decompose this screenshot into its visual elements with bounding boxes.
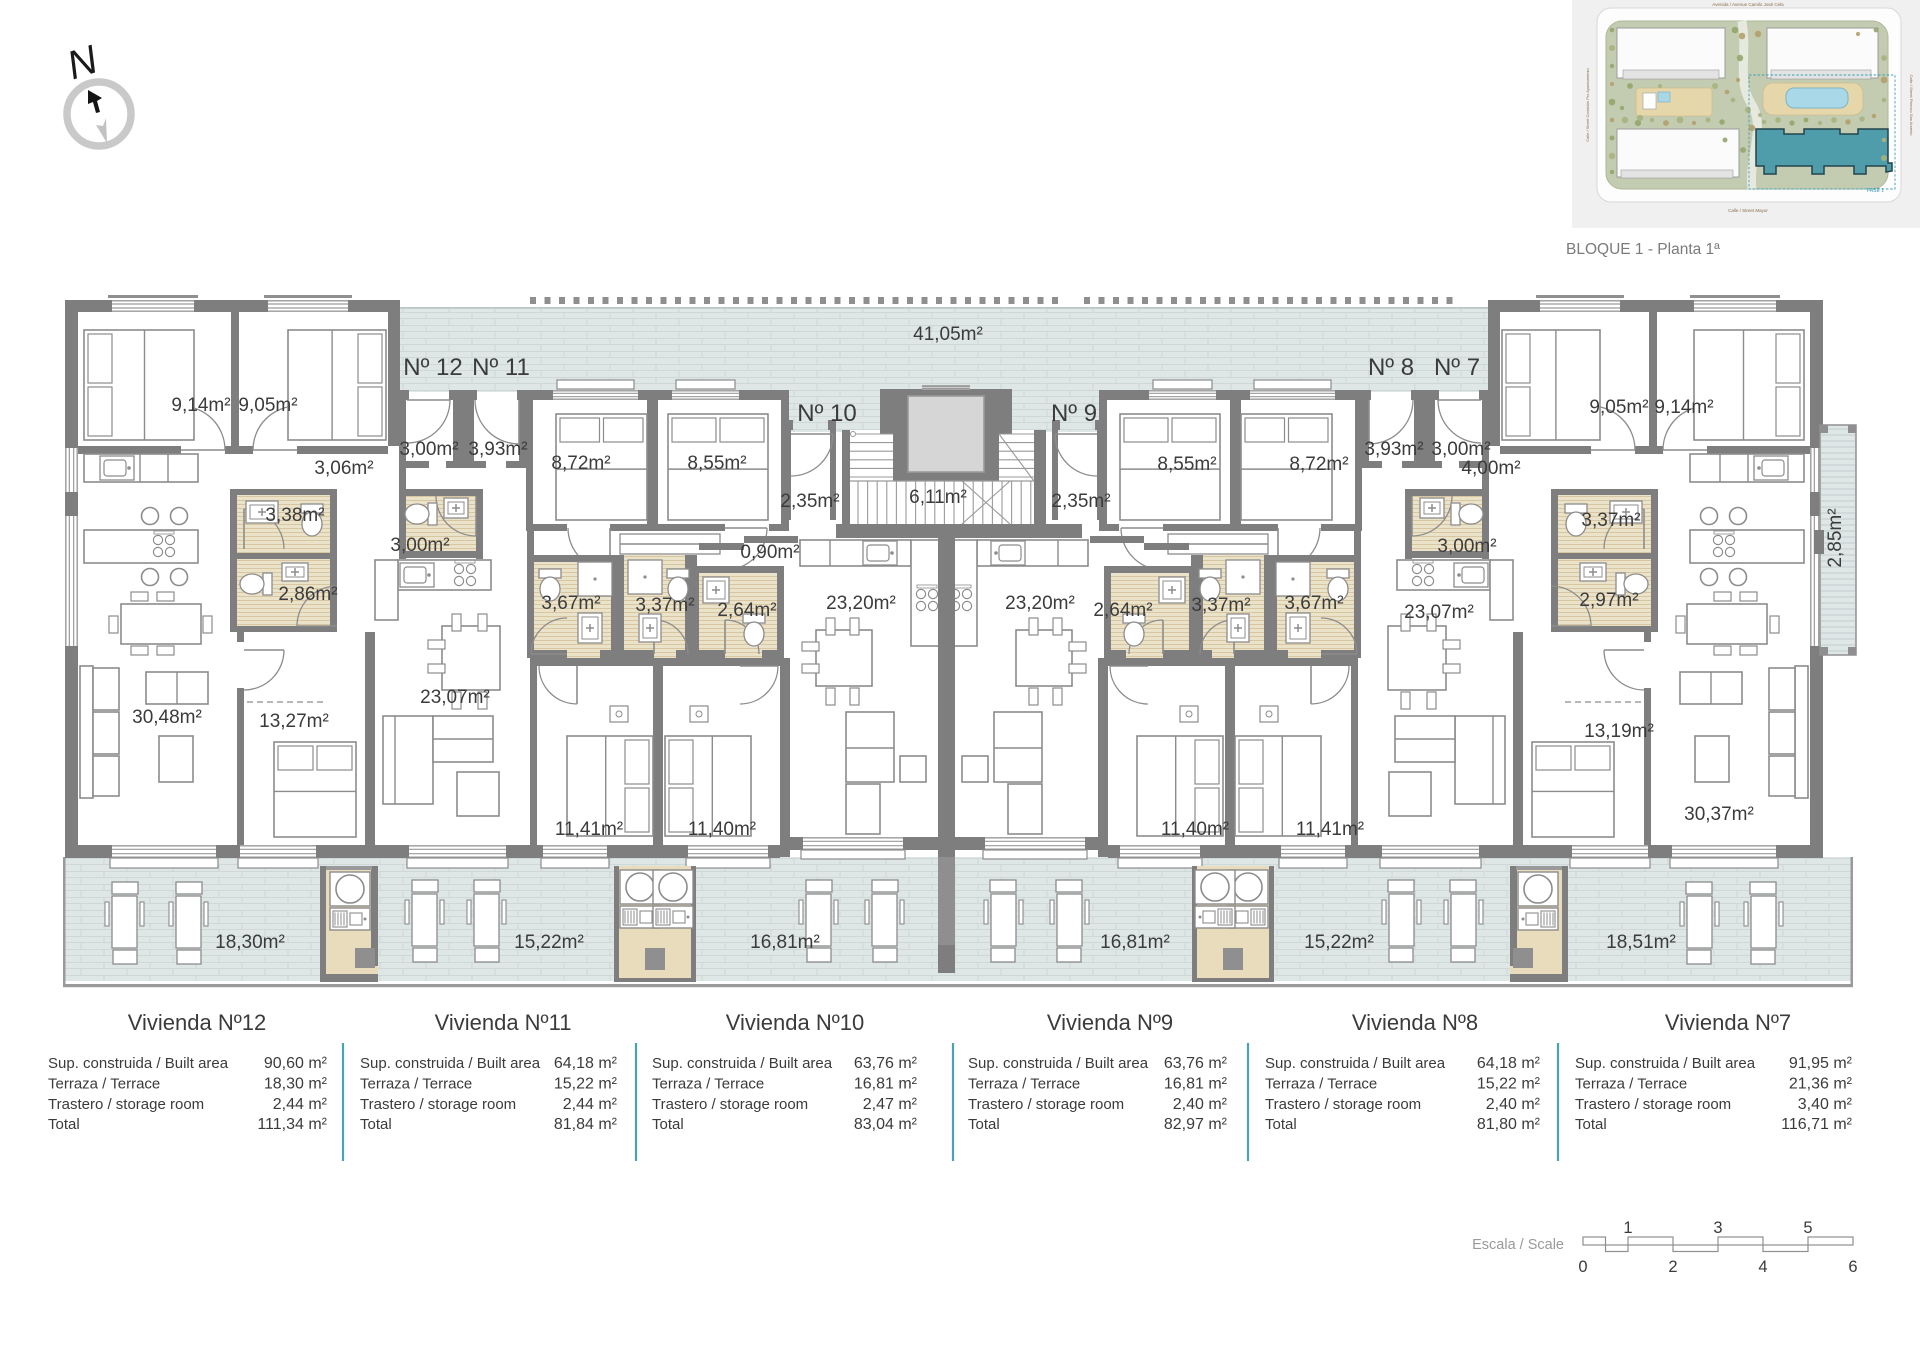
svg-text:64,18 m²: 64,18 m² bbox=[1477, 1055, 1541, 1072]
svg-text:Terraza / Terrace: Terraza / Terrace bbox=[652, 1075, 764, 1092]
svg-text:21,36 m²: 21,36 m² bbox=[1789, 1075, 1853, 1092]
svg-text:3,00m²: 3,00m² bbox=[1437, 536, 1496, 557]
svg-text:6: 6 bbox=[1848, 1258, 1857, 1276]
svg-text:3,38m²: 3,38m² bbox=[265, 505, 324, 526]
svg-text:Sup. construida / Built area: Sup. construida / Built area bbox=[1575, 1055, 1756, 1072]
svg-text:3,06m²: 3,06m² bbox=[314, 458, 373, 479]
svg-text:Total: Total bbox=[1575, 1116, 1607, 1133]
svg-text:0: 0 bbox=[1578, 1258, 1587, 1276]
svg-text:18,51m²: 18,51m² bbox=[1606, 932, 1676, 953]
svg-text:11,41m²: 11,41m² bbox=[555, 819, 623, 840]
svg-text:Total: Total bbox=[48, 1116, 80, 1133]
svg-text:3,67m²: 3,67m² bbox=[541, 593, 600, 614]
svg-text:82,97 m²: 82,97 m² bbox=[1164, 1116, 1228, 1133]
svg-text:3: 3 bbox=[1713, 1219, 1722, 1237]
svg-text:91,95 m²: 91,95 m² bbox=[1789, 1055, 1853, 1072]
svg-text:8,55m²: 8,55m² bbox=[687, 453, 746, 474]
svg-text:Vivienda Nº10: Vivienda Nº10 bbox=[726, 1010, 865, 1035]
svg-text:3,93m²: 3,93m² bbox=[468, 439, 527, 460]
svg-text:23,07m²: 23,07m² bbox=[420, 687, 490, 708]
svg-text:2,64m²: 2,64m² bbox=[1093, 600, 1152, 621]
svg-text:2,86m²: 2,86m² bbox=[278, 584, 337, 605]
svg-text:15,22m²: 15,22m² bbox=[1304, 932, 1374, 953]
svg-text:15,22 m²: 15,22 m² bbox=[1477, 1075, 1541, 1092]
svg-text:Nº 7: Nº 7 bbox=[1434, 354, 1480, 381]
svg-text:8,72m²: 8,72m² bbox=[1289, 454, 1348, 475]
svg-text:3,67m²: 3,67m² bbox=[1284, 593, 1343, 614]
svg-text:Sup. construida / Built area: Sup. construida / Built area bbox=[968, 1055, 1149, 1072]
svg-text:Trastero / storage room: Trastero / storage room bbox=[48, 1096, 204, 1113]
svg-text:63,76 m²: 63,76 m² bbox=[1164, 1055, 1228, 1072]
svg-text:4: 4 bbox=[1758, 1258, 1767, 1276]
svg-text:23,20m²: 23,20m² bbox=[826, 593, 896, 614]
svg-text:Terraza / Terrace: Terraza / Terrace bbox=[968, 1075, 1080, 1092]
svg-text:16,81 m²: 16,81 m² bbox=[1164, 1075, 1228, 1092]
svg-text:Total: Total bbox=[652, 1116, 684, 1133]
svg-text:Nº 10: Nº 10 bbox=[797, 400, 856, 427]
svg-text:9,05m²: 9,05m² bbox=[1589, 397, 1648, 418]
svg-text:13,19m²: 13,19m² bbox=[1584, 721, 1654, 742]
svg-text:Nº 9: Nº 9 bbox=[1051, 400, 1097, 427]
svg-text:Nº 8: Nº 8 bbox=[1368, 354, 1414, 381]
svg-text:Trastero / storage room: Trastero / storage room bbox=[652, 1096, 808, 1113]
svg-text:Terraza / Terrace: Terraza / Terrace bbox=[360, 1075, 472, 1092]
svg-text:1: 1 bbox=[1623, 1219, 1632, 1237]
svg-text:11,40m²: 11,40m² bbox=[688, 819, 756, 840]
svg-text:Calle / Street Párroco San Ars: Calle / Street Párroco San Arsenio bbox=[1909, 75, 1914, 137]
svg-text:3,37m²: 3,37m² bbox=[1191, 595, 1250, 616]
svg-text:9,14m²: 9,14m² bbox=[171, 395, 230, 416]
svg-text:3,00m²: 3,00m² bbox=[1431, 439, 1490, 460]
svg-text:63,76 m²: 63,76 m² bbox=[854, 1055, 918, 1072]
svg-text:13,27m²: 13,27m² bbox=[259, 711, 329, 732]
svg-text:11,40m²: 11,40m² bbox=[1161, 819, 1229, 840]
svg-text:2,97m²: 2,97m² bbox=[1579, 590, 1638, 611]
svg-text:3,40 m²: 3,40 m² bbox=[1798, 1096, 1853, 1113]
svg-text:16,81m²: 16,81m² bbox=[1100, 932, 1170, 953]
svg-text:Sup. construida / Built area: Sup. construida / Built area bbox=[652, 1055, 833, 1072]
svg-text:Calle / Street Mayor: Calle / Street Mayor bbox=[1728, 208, 1768, 213]
svg-text:41,05m²: 41,05m² bbox=[913, 324, 983, 345]
svg-text:64,18 m²: 64,18 m² bbox=[554, 1055, 618, 1072]
svg-text:Vivienda Nº9: Vivienda Nº9 bbox=[1047, 1010, 1173, 1035]
svg-text:9,14m²: 9,14m² bbox=[1654, 397, 1713, 418]
svg-text:16,81 m²: 16,81 m² bbox=[854, 1075, 918, 1092]
svg-text:Total: Total bbox=[968, 1116, 1000, 1133]
svg-text:90,60 m²: 90,60 m² bbox=[264, 1055, 328, 1072]
svg-text:2: 2 bbox=[1668, 1258, 1677, 1276]
svg-text:18,30 m²: 18,30 m² bbox=[264, 1075, 328, 1092]
svg-text:2,35m²: 2,35m² bbox=[1051, 491, 1110, 512]
svg-text:FASE 1: FASE 1 bbox=[1867, 188, 1884, 194]
svg-text:Avenida / Avenue Camilo José C: Avenida / Avenue Camilo José Cela bbox=[1712, 2, 1784, 7]
svg-text:3,93m²: 3,93m² bbox=[1364, 439, 1423, 460]
svg-text:Vivienda Nº8: Vivienda Nº8 bbox=[1352, 1010, 1478, 1035]
svg-text:Escala / Scale: Escala / Scale bbox=[1472, 1237, 1564, 1253]
svg-text:Trastero / storage room: Trastero / storage room bbox=[1575, 1096, 1731, 1113]
svg-text:Trastero / storage room: Trastero / storage room bbox=[360, 1096, 516, 1113]
svg-text:Sup. construida / Built area: Sup. construida / Built area bbox=[48, 1055, 229, 1072]
svg-text:23,07m²: 23,07m² bbox=[1404, 602, 1474, 623]
svg-text:Vivienda Nº12: Vivienda Nº12 bbox=[128, 1010, 267, 1035]
svg-text:2,47 m²: 2,47 m² bbox=[863, 1096, 918, 1113]
svg-text:Vivienda Nº7: Vivienda Nº7 bbox=[1665, 1010, 1791, 1035]
svg-text:Trastero / storage room: Trastero / storage room bbox=[968, 1096, 1124, 1113]
svg-text:5: 5 bbox=[1803, 1219, 1812, 1237]
svg-text:81,84 m²: 81,84 m² bbox=[554, 1116, 618, 1133]
svg-text:111,34 m²: 111,34 m² bbox=[257, 1116, 327, 1133]
svg-text:BLOQUE 1 - Planta 1ª: BLOQUE 1 - Planta 1ª bbox=[1566, 241, 1720, 258]
svg-text:3,37m²: 3,37m² bbox=[635, 595, 694, 616]
svg-text:Vivienda Nº11: Vivienda Nº11 bbox=[435, 1010, 572, 1035]
svg-text:Sup. construida / Built area: Sup. construida / Built area bbox=[360, 1055, 541, 1072]
svg-text:3,37m²: 3,37m² bbox=[1581, 510, 1640, 531]
svg-text:30,37m²: 30,37m² bbox=[1684, 804, 1754, 825]
svg-text:2,44 m²: 2,44 m² bbox=[563, 1096, 618, 1113]
svg-text:Total: Total bbox=[360, 1116, 392, 1133]
svg-text:15,22 m²: 15,22 m² bbox=[554, 1075, 618, 1092]
svg-text:2,64m²: 2,64m² bbox=[717, 600, 776, 621]
svg-text:Terraza / Terrace: Terraza / Terrace bbox=[48, 1075, 160, 1092]
svg-text:Total: Total bbox=[1265, 1116, 1297, 1133]
svg-text:4,00m²: 4,00m² bbox=[1461, 458, 1520, 479]
svg-text:83,04 m²: 83,04 m² bbox=[854, 1116, 918, 1133]
svg-text:2,44 m²: 2,44 m² bbox=[273, 1096, 328, 1113]
svg-text:16,81m²: 16,81m² bbox=[750, 932, 820, 953]
svg-text:81,80 m²: 81,80 m² bbox=[1477, 1116, 1541, 1133]
svg-text:Terraza / Terrace: Terraza / Terrace bbox=[1575, 1075, 1687, 1092]
svg-text:11,41m²: 11,41m² bbox=[1296, 819, 1364, 840]
svg-text:0,90m²: 0,90m² bbox=[740, 542, 799, 563]
svg-text:116,71 m²: 116,71 m² bbox=[1781, 1116, 1853, 1133]
svg-text:8,55m²: 8,55m² bbox=[1157, 454, 1216, 475]
svg-text:18,30m²: 18,30m² bbox=[215, 932, 285, 953]
svg-text:Trastero / storage room: Trastero / storage room bbox=[1265, 1096, 1421, 1113]
svg-text:8,72m²: 8,72m² bbox=[551, 453, 610, 474]
svg-text:23,20m²: 23,20m² bbox=[1005, 593, 1075, 614]
svg-text:2,40 m²: 2,40 m² bbox=[1486, 1096, 1541, 1113]
svg-text:Nº 12: Nº 12 bbox=[403, 354, 462, 381]
svg-text:9,05m²: 9,05m² bbox=[238, 395, 297, 416]
svg-text:2,85m²: 2,85m² bbox=[1825, 508, 1846, 567]
svg-text:Nº 11: Nº 11 bbox=[472, 354, 530, 381]
svg-text:Terraza / Terrace: Terraza / Terrace bbox=[1265, 1075, 1377, 1092]
svg-text:30,48m²: 30,48m² bbox=[132, 707, 202, 728]
svg-text:2,40 m²: 2,40 m² bbox=[1173, 1096, 1228, 1113]
svg-text:6,11m²: 6,11m² bbox=[909, 487, 967, 508]
svg-text:2,35m²: 2,35m² bbox=[780, 491, 839, 512]
svg-text:3,00m²: 3,00m² bbox=[390, 535, 449, 556]
svg-text:15,22m²: 15,22m² bbox=[514, 932, 584, 953]
svg-text:Sup. construida / Built area: Sup. construida / Built area bbox=[1265, 1055, 1446, 1072]
svg-text:Calle / Street Comisión Pro Ay: Calle / Street Comisión Pro Ayuntamiento bbox=[1585, 67, 1590, 141]
svg-text:3,00m²: 3,00m² bbox=[399, 439, 458, 460]
